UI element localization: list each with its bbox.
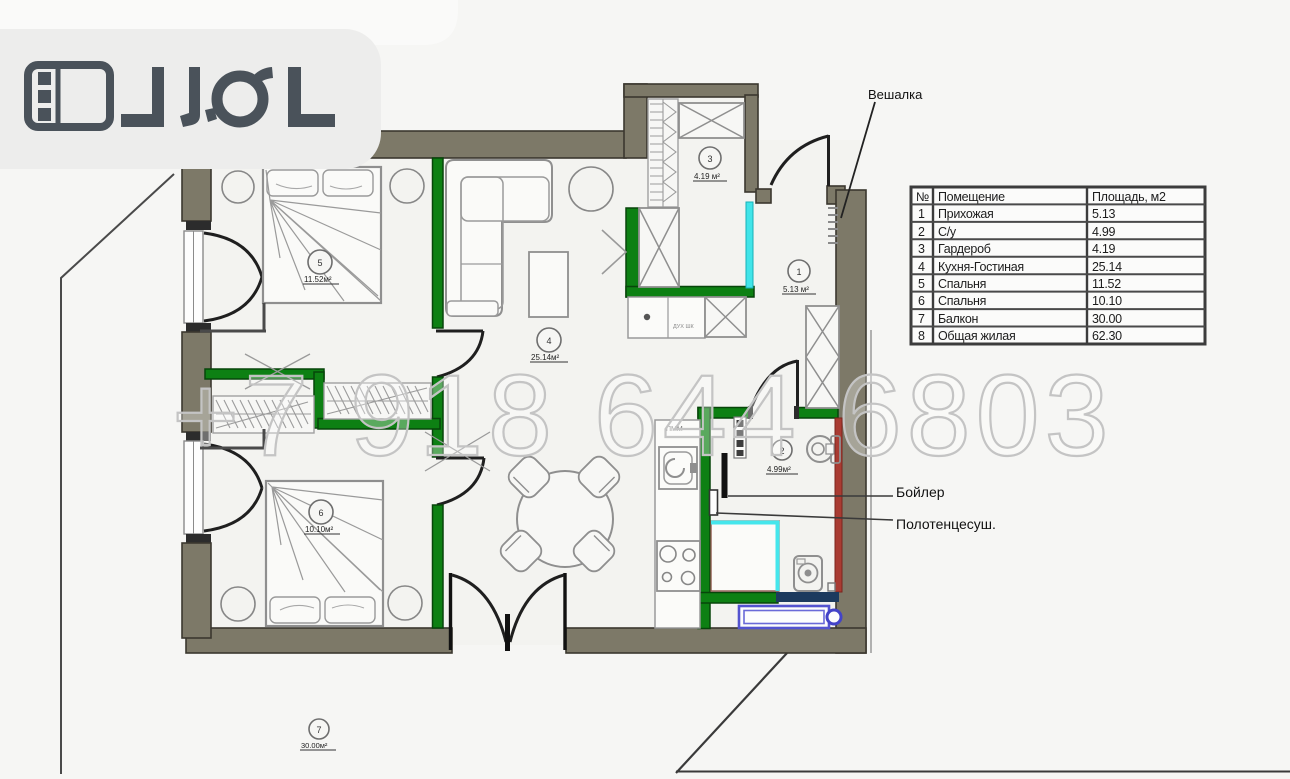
svg-text:8: 8 [918,329,925,343]
svg-text:Помещение: Помещение [938,190,1005,204]
svg-text:4.99: 4.99 [1092,225,1115,239]
svg-text:30.00м²: 30.00м² [301,741,328,750]
svg-text:5.13 м²: 5.13 м² [783,285,809,294]
svg-text:6: 6 [318,508,323,518]
svg-text:11.52: 11.52 [1092,277,1121,291]
svg-text:ДУХ ШК: ДУХ ШК [673,324,695,330]
svg-text:5: 5 [918,277,925,291]
svg-text:7: 7 [918,312,925,326]
svg-text:11.52м²: 11.52м² [304,275,332,284]
svg-text:Общая жилая: Общая жилая [938,329,1015,343]
svg-text:Спальня: Спальня [938,277,986,291]
svg-text:5: 5 [317,258,322,268]
svg-text:3: 3 [918,242,925,256]
svg-text:4: 4 [546,336,551,346]
svg-text:Бойлер: Бойлер [896,484,945,500]
svg-text:25.14: 25.14 [1092,260,1122,274]
svg-text:4.19: 4.19 [1092,242,1115,256]
svg-text:3: 3 [707,154,712,164]
svg-text:Спальня: Спальня [938,294,986,308]
svg-text:1: 1 [918,207,925,221]
svg-text:№: № [916,190,929,204]
svg-text:Кухня-Гостиная: Кухня-Гостиная [938,260,1024,274]
svg-text:Вешалка: Вешалка [868,87,923,102]
svg-text:10.10: 10.10 [1092,294,1122,308]
svg-text:6: 6 [918,294,925,308]
svg-text:Гардероб: Гардероб [938,242,991,256]
svg-text:10.10м²: 10.10м² [305,525,334,534]
svg-text:62.30: 62.30 [1092,329,1122,343]
svg-text:2: 2 [918,225,925,239]
svg-text:30.00: 30.00 [1092,312,1122,326]
svg-text:1: 1 [796,267,801,277]
svg-text:Полотенцесуш.: Полотенцесуш. [896,516,996,532]
svg-text:+7 918 644 6803: +7 918 644 6803 [172,352,1114,480]
svg-text:4: 4 [918,260,925,274]
svg-text:Балкон: Балкон [938,312,979,326]
svg-text:4.19 м²: 4.19 м² [694,172,720,181]
svg-text:7: 7 [316,725,321,735]
svg-text:Площадь, м2: Площадь, м2 [1092,190,1166,204]
svg-text:С/у: С/у [938,225,957,239]
svg-text:5.13: 5.13 [1092,207,1115,221]
svg-text:Прихожая: Прихожая [938,207,994,221]
